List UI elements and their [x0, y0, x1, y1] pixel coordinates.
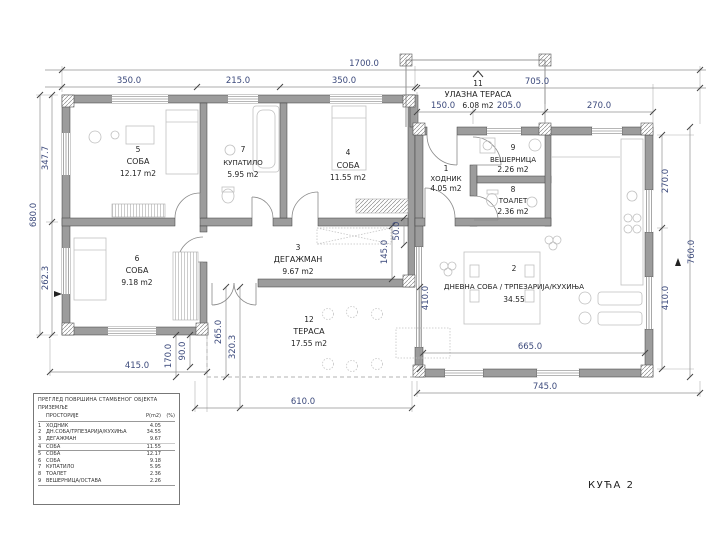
- dim-label: 205.0: [497, 101, 521, 111]
- dim-label: 270.0: [661, 169, 671, 193]
- dim-label: 1700.0: [349, 59, 379, 69]
- svg-text:СОБА: СОБА: [337, 161, 360, 170]
- dim-label: 705.0: [525, 77, 549, 87]
- table-header: ПРОСТОРИЈЕ P(m2) (%): [38, 413, 175, 422]
- dim-label: 680.0: [29, 203, 39, 227]
- plant: [440, 262, 456, 276]
- svg-text:СОБА: СОБА: [126, 266, 149, 275]
- dimension-lines: [37, 67, 706, 411]
- svg-text:6.08 m2: 6.08 m2: [462, 101, 493, 110]
- svg-text:УЛАЗНА ТЕРАСА: УЛАЗНА ТЕРАСА: [445, 90, 512, 99]
- dim-label: 610.0: [291, 397, 315, 407]
- svg-text:ВЕШЕРНИЦА: ВЕШЕРНИЦА: [490, 156, 536, 164]
- svg-text:17.55 m2: 17.55 m2: [291, 339, 327, 348]
- room-label-toalet: 8ТОАЛЕТ2.36 m2: [497, 185, 528, 216]
- svg-text:7: 7: [241, 145, 246, 154]
- dim-label: 347.7: [41, 146, 51, 170]
- kitchen-sink: [627, 191, 637, 201]
- sink-wc: [527, 197, 537, 207]
- dim-label: 350.0: [332, 76, 356, 86]
- desk-room5: [126, 126, 154, 144]
- dim-label: 262.3: [41, 266, 51, 290]
- terrace-chair: [323, 309, 334, 320]
- dim-label: 145.0: [380, 240, 390, 264]
- table-row: 5СОБА12.17: [38, 451, 175, 458]
- table-row: 8ТОАЛЕТ2.36: [38, 471, 175, 478]
- room-label-soba4: 4СОБА11.55 m2: [330, 148, 366, 182]
- dim-label: 665.0: [518, 342, 542, 352]
- svg-text:3: 3: [296, 243, 301, 252]
- dim-label: 90.0: [178, 342, 188, 361]
- table-row: 1ХОДНИК4.05: [38, 423, 175, 430]
- plant: [545, 236, 561, 250]
- dim-label: 760.0: [687, 240, 697, 264]
- boiler: [529, 139, 541, 151]
- room-label-terasa: 12ТЕРАСА17.55 m2: [291, 315, 327, 348]
- table-title: ПРЕГЛЕД ПОВРШИНА СТАМБЕНОГ ОБЈЕКТА: [38, 397, 175, 404]
- col-rooms: ПРОСТОРИЈЕ: [46, 413, 137, 420]
- entrance-arrow-icon: [473, 71, 483, 77]
- kitchen-counter: [621, 139, 643, 285]
- table-total-row: [38, 485, 175, 493]
- table-row: 7КУПАТИЛО5.95: [38, 464, 175, 471]
- armchair: [579, 292, 591, 304]
- svg-text:11.55 m2: 11.55 m2: [330, 173, 366, 182]
- floor-plan-sheet: 1700.0 350.0 215.0 350.0 705.0 150.0 205…: [0, 0, 718, 539]
- dim-label: 170.0: [164, 344, 174, 368]
- svg-text:4: 4: [346, 148, 351, 157]
- dimension-labels: 1700.0 350.0 215.0 350.0 705.0 150.0 205…: [29, 59, 697, 407]
- dim-label: 215.0: [226, 76, 250, 86]
- wardrobe-room5: [112, 204, 165, 217]
- drawing-title: КУЋА 2: [588, 480, 634, 491]
- chair-room5: [89, 131, 101, 143]
- table-subtitle: ПРИЗЕМЉЕ: [38, 405, 175, 412]
- svg-text:9.67 m2: 9.67 m2: [282, 267, 313, 276]
- svg-text:СОБА: СОБА: [127, 157, 150, 166]
- svg-text:6: 6: [135, 254, 140, 263]
- svg-text:ДНЕВНА СОБА / ТРПЕЗАРИЈА/КУХИЊ: ДНЕВНА СОБА / ТРПЕЗАРИЈА/КУХИЊА: [444, 282, 584, 291]
- svg-text:КУПАТИЛО: КУПАТИЛО: [223, 159, 263, 167]
- col-area: P(m2): [137, 413, 161, 420]
- dim-label: 150.0: [431, 101, 455, 111]
- svg-text:11: 11: [473, 79, 483, 88]
- svg-text:9.18 m2: 9.18 m2: [121, 278, 152, 287]
- svg-text:12: 12: [304, 315, 314, 324]
- svg-text:5: 5: [136, 145, 141, 154]
- svg-text:ХОДНИК: ХОДНИК: [430, 175, 461, 183]
- dim-label: 50.0: [392, 222, 402, 241]
- stove-burner: [624, 214, 632, 222]
- svg-text:5.95 m2: 5.95 m2: [227, 170, 258, 179]
- svg-text:ДЕГАЖМАН: ДЕГАЖМАН: [274, 255, 323, 264]
- svg-text:ТОАЛЕТ: ТОАЛЕТ: [498, 197, 528, 205]
- svg-text:4.05 m2: 4.05 m2: [430, 184, 461, 193]
- table-row: 4СОБА11.55: [38, 444, 175, 452]
- dim-label: 410.0: [421, 286, 431, 310]
- dim-label: 410.0: [661, 286, 671, 310]
- area-summary-table: ПРЕГЛЕД ПОВРШИНА СТАМБЕНОГ ОБЈЕКТА ПРИЗЕ…: [33, 393, 180, 505]
- room-label-degazman: 3ДЕГАЖМАН9.67 m2: [274, 243, 323, 276]
- svg-text:2.36 m2: 2.36 m2: [497, 207, 528, 216]
- wardrobe-room6: [173, 252, 198, 320]
- svg-text:8: 8: [511, 185, 516, 194]
- table-row: 6СОБА9.18: [38, 458, 175, 465]
- bed-room5: [166, 110, 198, 174]
- direction-arrow-icon: [675, 258, 681, 266]
- toilet-bath: [222, 189, 234, 203]
- svg-text:ТЕРАСА: ТЕРАСА: [292, 327, 325, 336]
- svg-text:2.26 m2: 2.26 m2: [497, 165, 528, 174]
- svg-text:2: 2: [512, 264, 517, 273]
- dim-label: 270.0: [587, 101, 611, 111]
- svg-text:9: 9: [511, 143, 516, 152]
- dim-label: 745.0: [533, 382, 557, 392]
- svg-text:1: 1: [444, 164, 449, 173]
- room-label-hodnik: 1ХОДНИК4.05 m2: [430, 164, 461, 193]
- room-label-soba6: 6СОБА9.18 m2: [121, 254, 152, 287]
- dim-label: 350.0: [117, 76, 141, 86]
- svg-text:34.55: 34.55: [503, 295, 525, 304]
- sofa: [598, 292, 642, 305]
- room-label-soba5: 5СОБА12.17 m2: [120, 145, 156, 178]
- windows: [62, 95, 653, 377]
- dim-label: 415.0: [125, 361, 149, 371]
- bed-room6: [74, 238, 106, 300]
- svg-text:12.17 m2: 12.17 m2: [120, 169, 156, 178]
- table-row: 9ВЕШЕРНИЦА/ОСТАВА2.26: [38, 478, 175, 485]
- wardrobe-room4: [356, 199, 408, 213]
- direction-arrow-icon: [54, 291, 62, 297]
- col-percent: (%): [161, 413, 175, 420]
- dim-label: 265.0: [214, 320, 224, 344]
- table-row: 3ДЕГАЖМАН9.67: [38, 436, 175, 444]
- table-row: 2ДН.СОБА/ТРПЕЗАРИЈА/КУХИЊА34.55: [38, 429, 175, 436]
- room-label-dnevna-soba: 2ДНЕВНА СОБА / ТРПЕЗАРИЈА/КУХИЊА34.55: [444, 264, 584, 304]
- dim-label: 320.3: [228, 335, 238, 359]
- sink-bath: [225, 145, 235, 155]
